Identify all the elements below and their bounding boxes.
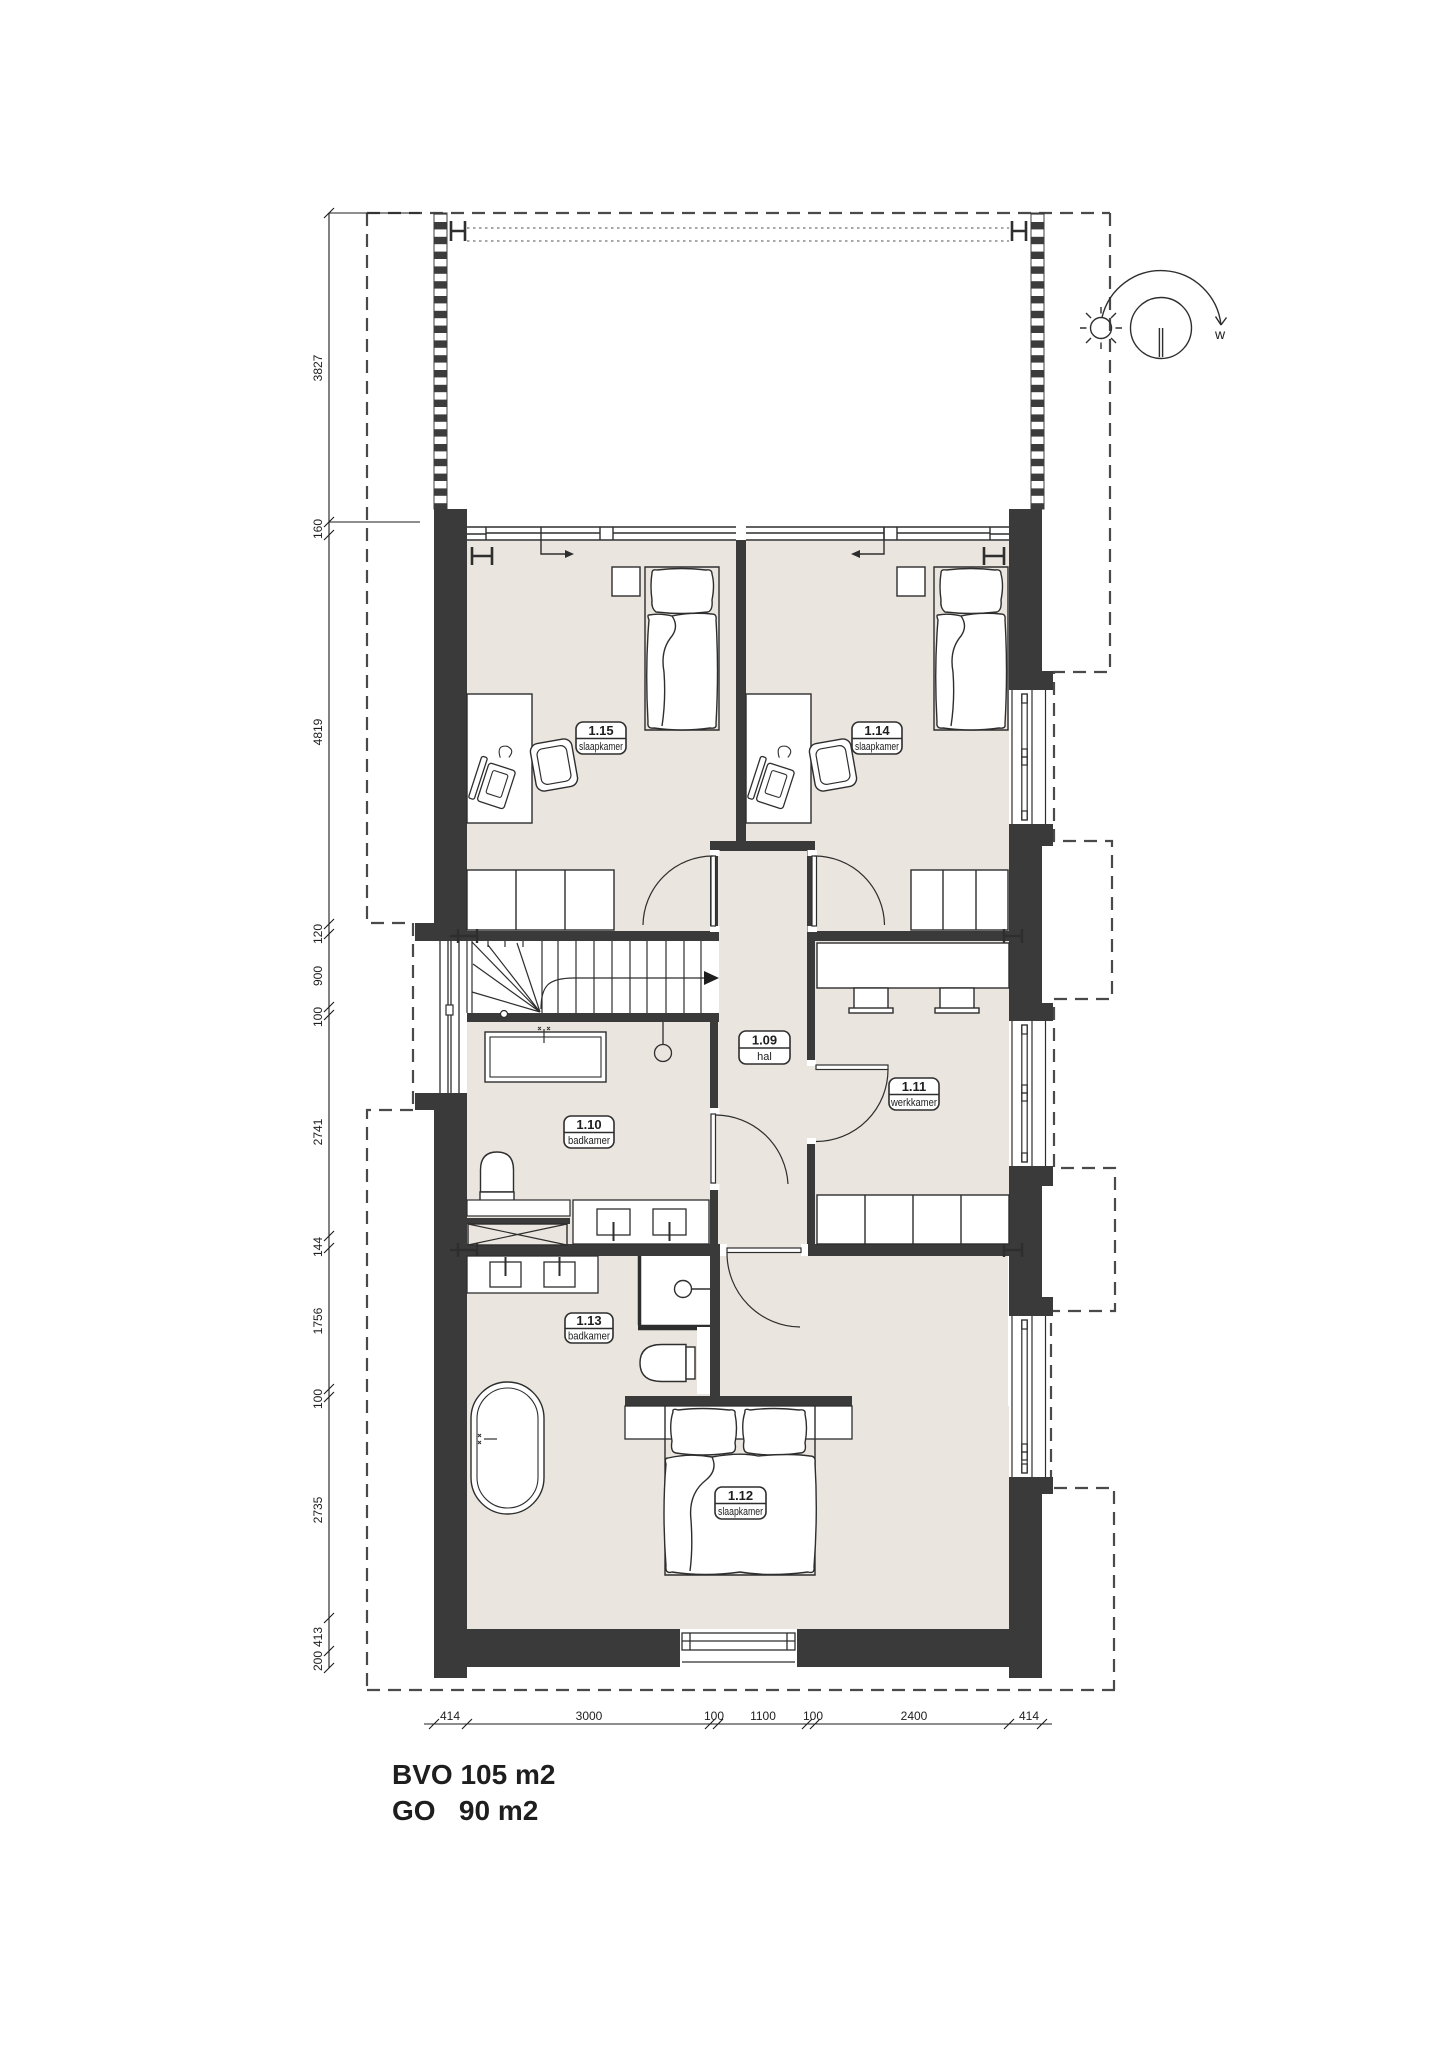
svg-text:1.09: 1.09 — [752, 1033, 777, 1048]
svg-text:144: 144 — [311, 1237, 325, 1257]
svg-text:slaapkamer: slaapkamer — [579, 741, 623, 753]
svg-text:BVO 105 m2: BVO 105 m2 — [392, 1759, 555, 1790]
svg-text:414: 414 — [1019, 1709, 1039, 1723]
svg-text:3827: 3827 — [311, 354, 325, 381]
svg-text:1.11: 1.11 — [902, 1079, 927, 1094]
svg-text:1.13: 1.13 — [576, 1313, 601, 1328]
svg-text:100: 100 — [311, 1007, 325, 1027]
svg-text:2735: 2735 — [311, 1496, 325, 1523]
svg-text:1100: 1100 — [750, 1709, 776, 1723]
svg-text:w: w — [1214, 326, 1226, 342]
svg-text:werkkamer: werkkamer — [890, 1097, 937, 1109]
svg-text:120: 120 — [311, 924, 325, 944]
svg-text:badkamer: badkamer — [568, 1135, 610, 1147]
svg-text:1.15: 1.15 — [588, 723, 613, 738]
svg-text:slaapkamer: slaapkamer — [718, 1506, 763, 1518]
svg-text:badkamer: badkamer — [568, 1331, 610, 1343]
svg-text:1756: 1756 — [311, 1307, 325, 1334]
svg-text:slaapkamer: slaapkamer — [855, 741, 899, 753]
svg-text:1.12: 1.12 — [728, 1488, 753, 1503]
svg-text:2400: 2400 — [901, 1709, 928, 1723]
svg-text:2741: 2741 — [311, 1118, 325, 1145]
svg-text:160: 160 — [311, 519, 325, 539]
svg-text:100: 100 — [803, 1709, 823, 1723]
svg-text:100: 100 — [704, 1709, 724, 1723]
svg-text:1.10: 1.10 — [576, 1117, 601, 1132]
svg-text:100: 100 — [311, 1389, 325, 1409]
svg-text:1.14: 1.14 — [864, 723, 890, 738]
svg-text:900: 900 — [311, 966, 325, 986]
svg-text:200: 200 — [311, 1651, 325, 1671]
svg-text:hal: hal — [757, 1051, 772, 1063]
svg-text:3000: 3000 — [576, 1709, 603, 1723]
svg-text:GO 90 m2: GO 90 m2 — [392, 1795, 538, 1826]
svg-text:414: 414 — [440, 1709, 460, 1723]
svg-text:4819: 4819 — [311, 718, 325, 745]
svg-text:413: 413 — [311, 1627, 325, 1647]
